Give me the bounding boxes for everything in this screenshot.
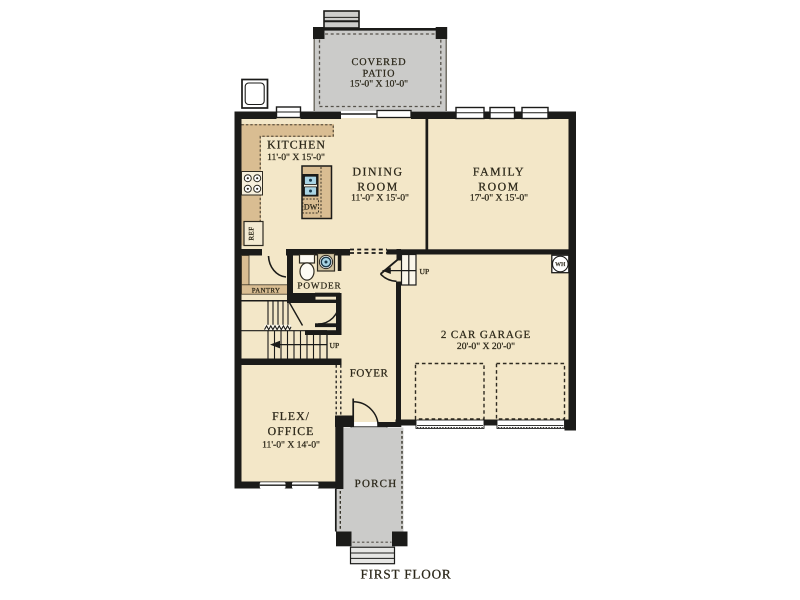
svg-text:FAMILY: FAMILY: [473, 165, 525, 179]
svg-text:11'-0" X 15'-0": 11'-0" X 15'-0": [267, 152, 325, 163]
svg-text:PORCH: PORCH: [355, 478, 398, 490]
svg-text:POWDER: POWDER: [297, 280, 341, 290]
svg-text:UP: UP: [420, 267, 430, 276]
svg-text:11'-0" X 15'-0": 11'-0" X 15'-0": [351, 193, 409, 204]
svg-text:2 CAR GARAGE: 2 CAR GARAGE: [441, 329, 531, 341]
svg-text:OFFICE: OFFICE: [268, 424, 315, 438]
svg-text:WH: WH: [555, 262, 566, 268]
svg-text:FIRST FLOOR: FIRST FLOOR: [360, 567, 451, 582]
svg-text:15'-0" X 10'-0": 15'-0" X 10'-0": [350, 79, 408, 90]
svg-text:ROOM: ROOM: [478, 180, 519, 194]
svg-text:20'-0" X 20'-0": 20'-0" X 20'-0": [457, 341, 515, 352]
svg-text:ROOM: ROOM: [357, 180, 398, 194]
svg-text:COVERED: COVERED: [351, 57, 406, 68]
svg-text:KITCHEN: KITCHEN: [267, 138, 326, 152]
svg-text:DINING: DINING: [353, 165, 404, 179]
svg-text:FLEX/: FLEX/: [272, 409, 310, 423]
svg-text:FOYER: FOYER: [350, 368, 389, 380]
svg-text:UP: UP: [330, 341, 340, 350]
svg-text:DW: DW: [304, 203, 318, 212]
svg-text:17'-0" X 15'-0": 17'-0" X 15'-0": [470, 193, 528, 204]
svg-text:PANTRY: PANTRY: [252, 287, 281, 294]
svg-text:11'-0" X 14'-0": 11'-0" X 14'-0": [262, 440, 320, 451]
svg-text:REF: REF: [248, 226, 256, 240]
